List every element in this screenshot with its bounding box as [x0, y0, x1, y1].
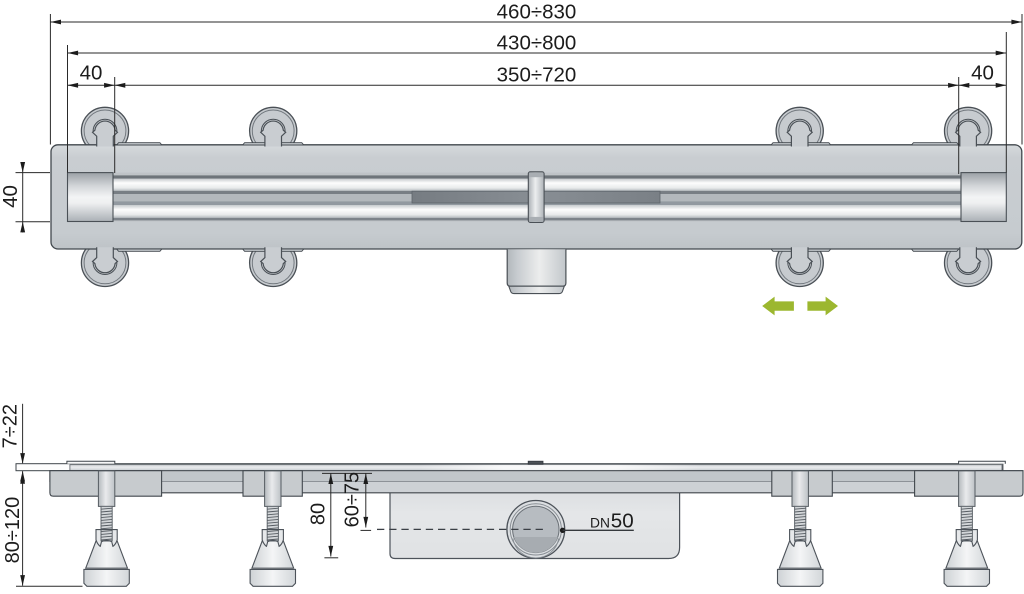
svg-text:430÷800: 430÷800	[497, 31, 577, 54]
svg-text:80÷120: 80÷120	[2, 497, 24, 564]
svg-text:60÷75: 60÷75	[341, 472, 363, 527]
svg-text:40: 40	[80, 61, 103, 84]
svg-text:80: 80	[307, 503, 329, 525]
svg-text:50: 50	[611, 510, 634, 533]
svg-text:460÷830: 460÷830	[497, 0, 577, 23]
svg-text:DN: DN	[590, 516, 610, 531]
svg-text:40: 40	[0, 185, 22, 208]
svg-text:350÷720: 350÷720	[497, 63, 577, 86]
svg-text:40: 40	[971, 61, 994, 84]
svg-text:7÷22: 7÷22	[0, 404, 21, 448]
